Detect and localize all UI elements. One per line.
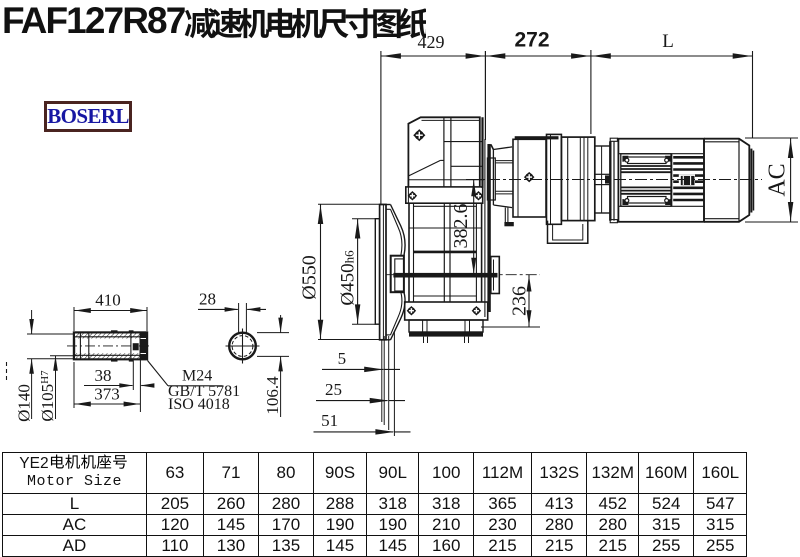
svg-text:51: 51	[321, 411, 338, 430]
svg-text:M24: M24	[182, 368, 212, 385]
svg-text:28: 28	[199, 290, 216, 309]
svg-text:25: 25	[325, 380, 342, 399]
svg-text:236: 236	[508, 286, 530, 316]
svg-text:410: 410	[95, 291, 121, 310]
svg-text:Ø105H7: Ø105H7	[38, 370, 57, 422]
svg-text:Ø550: Ø550	[299, 255, 321, 299]
svg-text:429: 429	[418, 32, 445, 52]
svg-text:L: L	[662, 31, 674, 52]
svg-text:Ø140: Ø140	[15, 384, 34, 422]
svg-text:ISO 4018: ISO 4018	[168, 396, 230, 413]
svg-text:38: 38	[95, 366, 112, 385]
svg-text:373: 373	[94, 385, 120, 404]
svg-text:AC: AC	[765, 163, 791, 196]
svg-text:382.6: 382.6	[450, 204, 472, 249]
svg-text:106.4: 106.4	[263, 376, 282, 415]
svg-text:5: 5	[338, 349, 347, 368]
svg-text:Ø450h6: Ø450h6	[338, 250, 359, 306]
svg-text:272: 272	[514, 29, 549, 52]
